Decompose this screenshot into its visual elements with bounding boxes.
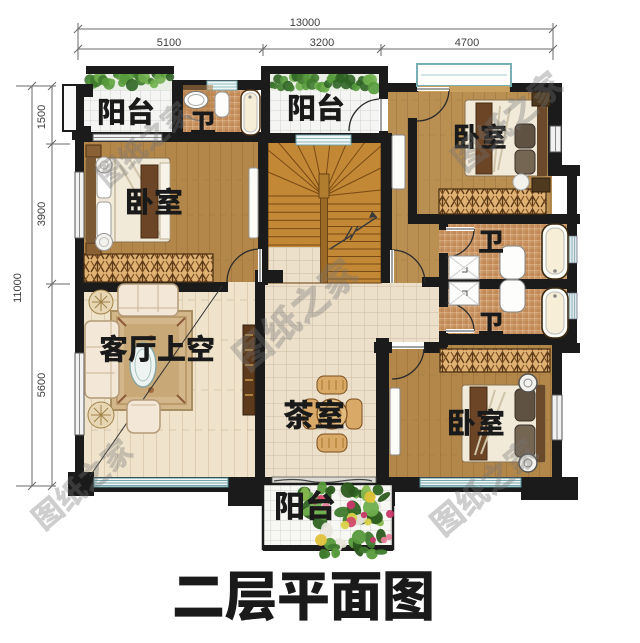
svg-text:13000: 13000: [290, 17, 321, 29]
svg-text:4700: 4700: [455, 37, 479, 49]
svg-text:3900: 3900: [36, 202, 48, 226]
svg-text:5600: 5600: [36, 373, 48, 397]
svg-text:1500: 1500: [36, 105, 48, 129]
svg-text:5100: 5100: [157, 37, 181, 49]
svg-text:11000: 11000: [12, 273, 24, 303]
svg-text:3200: 3200: [310, 37, 334, 49]
